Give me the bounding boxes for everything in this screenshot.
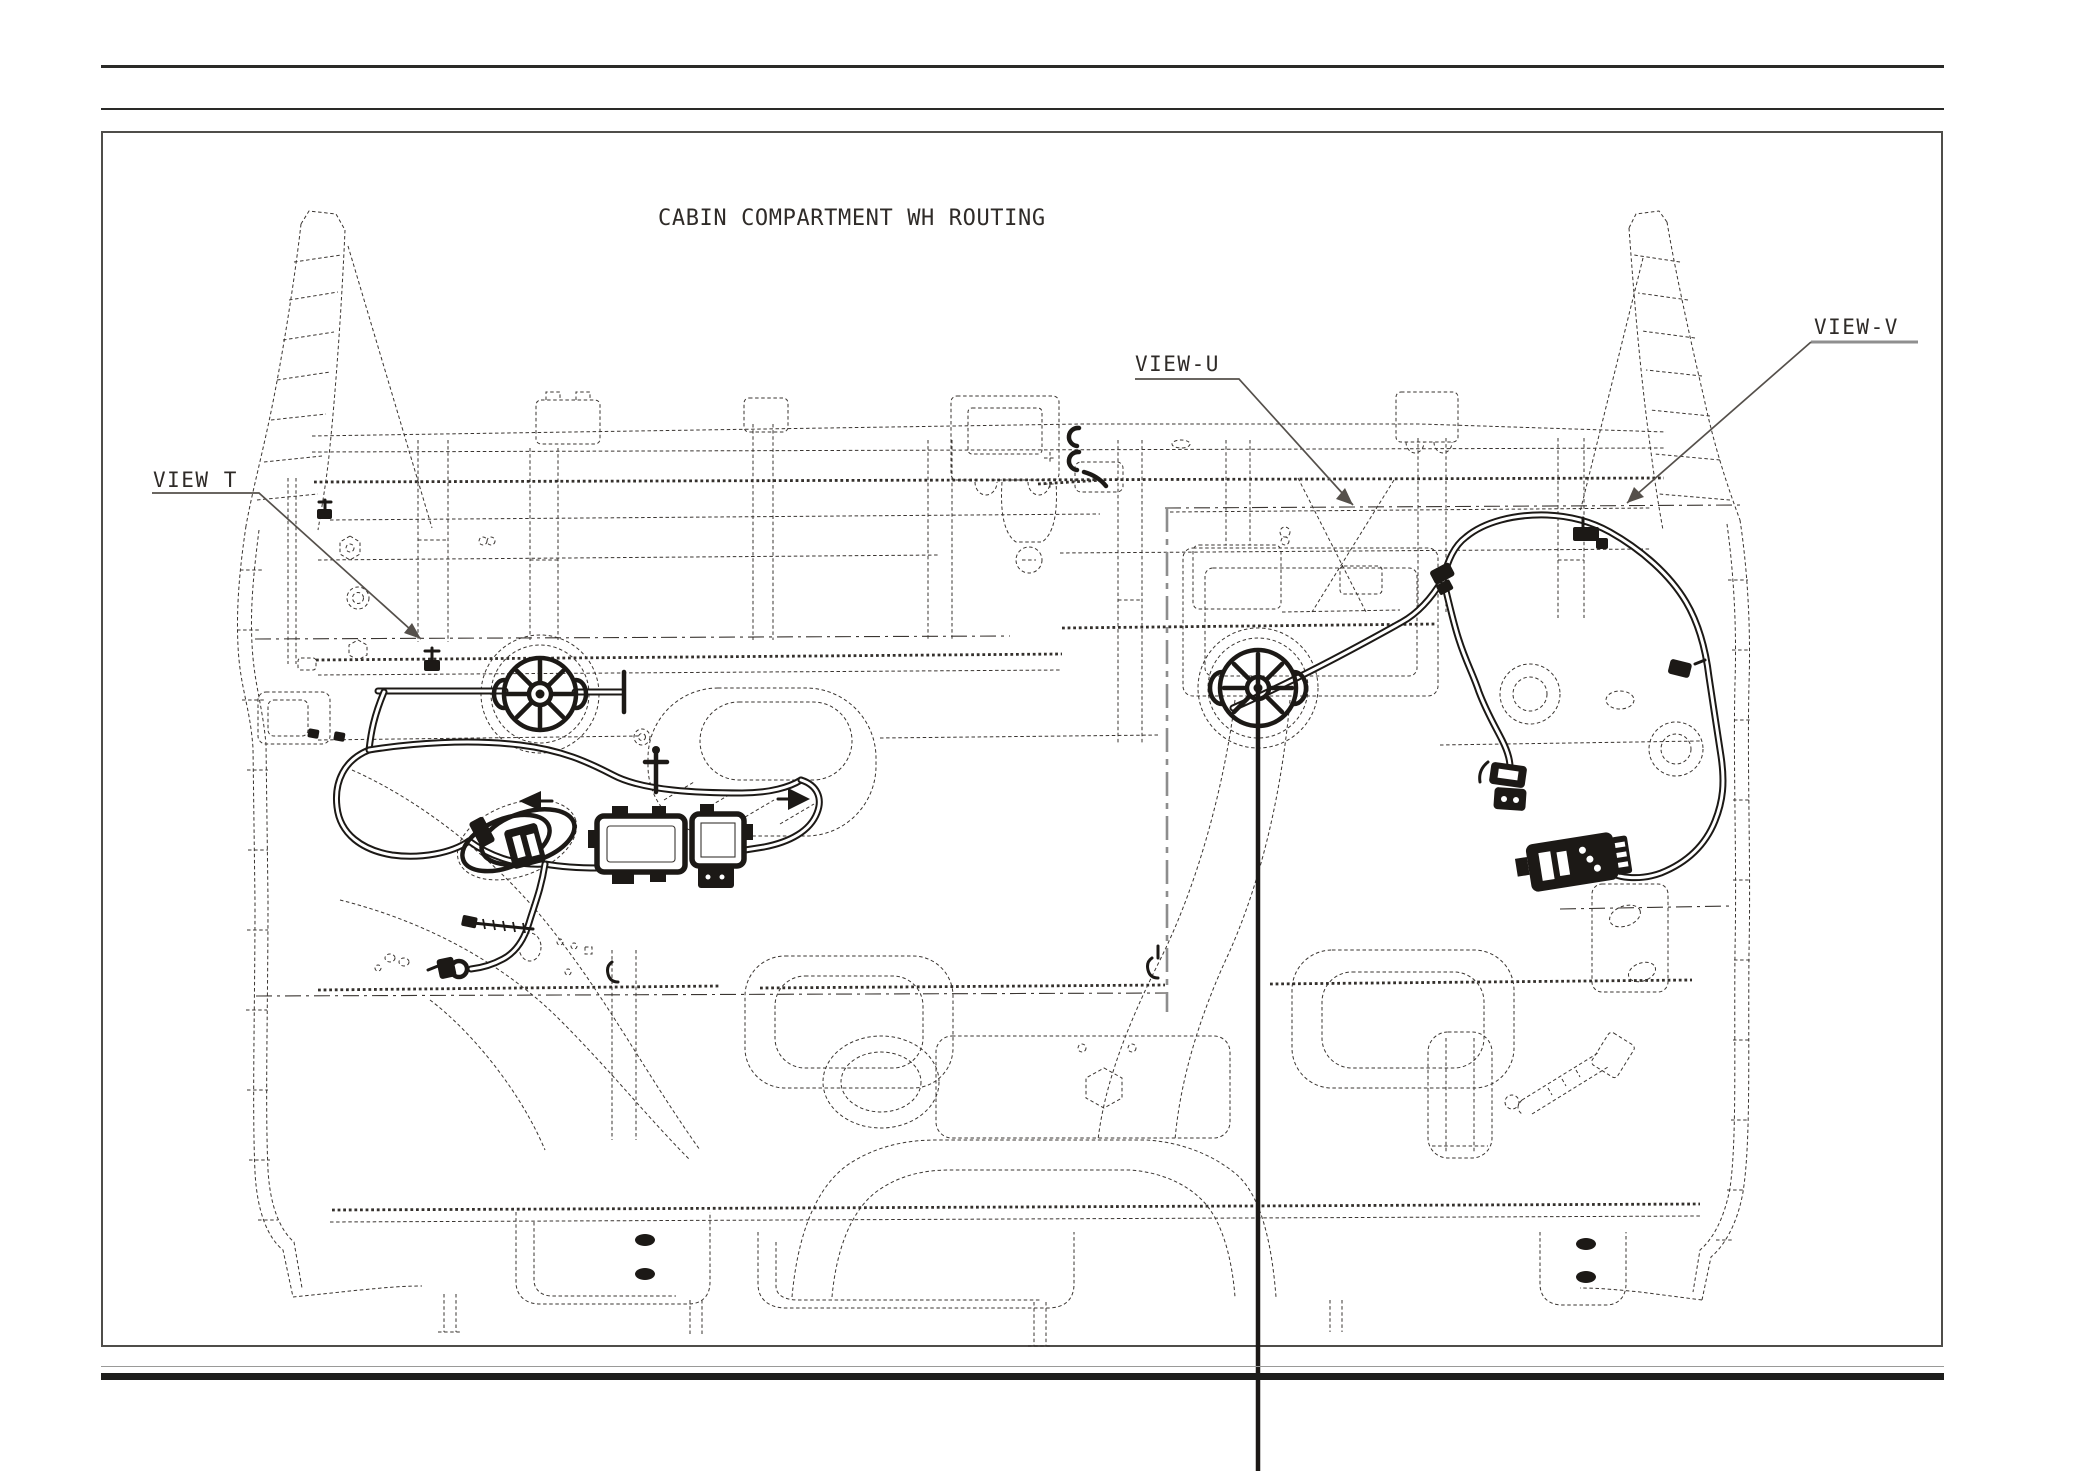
callout-view-t: VIEW T (153, 468, 238, 492)
right-harness (608, 428, 1724, 1471)
callout-view-v: VIEW-V (1814, 315, 1899, 339)
drawing-title: CABIN COMPARTMENT WH ROUTING (658, 206, 1046, 231)
bottom-rule-thin (101, 1366, 1944, 1367)
left-harness (307, 500, 819, 979)
callout-view-u: VIEW-U (1135, 352, 1220, 376)
centerlines (255, 505, 1742, 1012)
callout-leaders (152, 342, 1918, 639)
bottom-rule-thick (101, 1373, 1944, 1380)
